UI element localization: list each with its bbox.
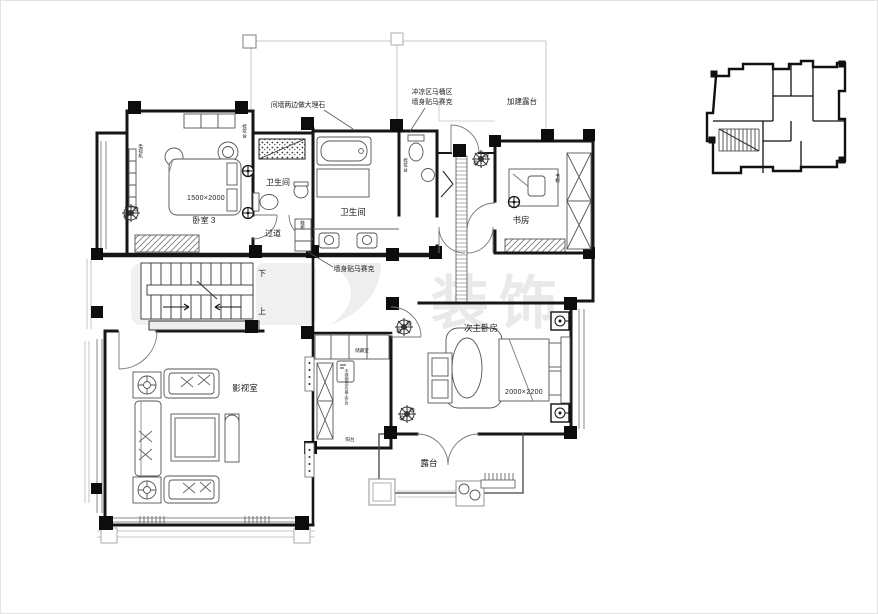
toilet-tank-main bbox=[408, 135, 424, 141]
door-master2 bbox=[391, 307, 421, 337]
label-bedroom3-bed-dim: 1500×2000 bbox=[187, 195, 225, 202]
annotation-mosaic-wall: 墙身贴马赛克 bbox=[334, 264, 375, 273]
wall-lamp-icon bbox=[243, 208, 254, 219]
label-dresser-bath: 梳妆台 bbox=[403, 157, 409, 173]
floor-outlet-icon bbox=[509, 197, 520, 208]
door-media-room bbox=[119, 331, 157, 369]
annotation-mosaic-2: 墙身贴马赛克 bbox=[412, 97, 453, 106]
inset-key-plan bbox=[707, 61, 845, 173]
annotation-added-terrace: 加建露台 bbox=[507, 96, 537, 106]
headboard bbox=[561, 337, 570, 403]
label-stair-up: 上 bbox=[258, 307, 266, 316]
side-table-fan bbox=[133, 372, 161, 398]
label-bedroom3: 卧室 3 bbox=[193, 215, 216, 225]
toilet-main bbox=[409, 143, 423, 161]
door-hall-right bbox=[467, 227, 493, 253]
annotation-mosaic-1: 冲凉区马桶区 bbox=[412, 87, 453, 96]
label-bath-main: 卫生间 bbox=[340, 207, 366, 217]
floor-plan-drawing: 装饰 bbox=[1, 1, 878, 614]
label-laundry-note: 不锈钢洗衣盆工作台 bbox=[345, 369, 350, 406]
wall-lamp-icon bbox=[243, 166, 254, 177]
toilet-small bbox=[260, 195, 278, 210]
desk-chair bbox=[528, 176, 545, 196]
window-seat-study bbox=[505, 239, 565, 252]
label-shoe-cabinet: 鞋柜 bbox=[300, 219, 306, 231]
plant-icon bbox=[398, 405, 416, 423]
window-seat-bedroom3 bbox=[135, 235, 199, 252]
label-tv: 电视机 bbox=[138, 143, 144, 159]
label-hallway: 过道 bbox=[265, 228, 281, 238]
label-terrace: 露台 bbox=[420, 458, 437, 468]
label-storage: 储藏室 bbox=[355, 347, 369, 354]
shower bbox=[317, 169, 369, 197]
tv-cabinet bbox=[129, 149, 136, 207]
console-table bbox=[225, 414, 239, 462]
toilet-tank-small bbox=[253, 193, 259, 211]
label-bookcase: 书橱 bbox=[555, 172, 561, 184]
label-study: 书房 bbox=[512, 215, 529, 225]
floor-plan-canvas: 装饰 bbox=[0, 0, 878, 614]
side-table-fan bbox=[133, 477, 161, 503]
label-dresser-bedroom3: 梳妆台 bbox=[242, 123, 248, 139]
annotation-marble: 间墙两边做大理石 bbox=[271, 100, 326, 109]
screen-partition bbox=[456, 156, 467, 302]
coffee-table bbox=[171, 414, 219, 461]
label-stair-down: 下 bbox=[258, 269, 266, 278]
label-master2-bed-dim: 2000×2200 bbox=[505, 389, 543, 396]
label-balcony: 阳台 bbox=[345, 436, 355, 443]
staircase bbox=[141, 263, 253, 319]
speaker-icon bbox=[551, 404, 570, 422]
dresser-stool bbox=[422, 169, 435, 182]
label-media-room: 影视室 bbox=[232, 383, 258, 393]
door-study bbox=[467, 203, 495, 231]
plant-icon bbox=[395, 318, 413, 336]
toilet-folding-door bbox=[441, 171, 453, 197]
storage-shelf bbox=[315, 335, 389, 359]
planter-comb bbox=[485, 473, 513, 480]
label-bath-small: 卫生间 bbox=[266, 177, 290, 187]
plant-icon bbox=[122, 204, 140, 222]
label-master2: 次主卧房 bbox=[464, 323, 498, 333]
speaker-icon bbox=[551, 312, 570, 330]
